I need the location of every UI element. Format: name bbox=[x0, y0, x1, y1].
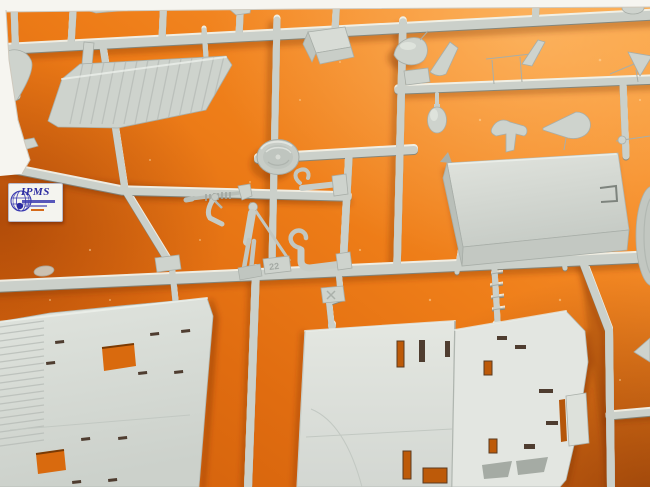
part-number-tag-4 bbox=[404, 68, 430, 85]
logo-subtitle-bar-2 bbox=[25, 205, 47, 207]
part-lower-wing-right bbox=[452, 311, 589, 487]
logo-title: IPMS bbox=[21, 186, 50, 198]
photo-canvas: 22 bbox=[0, 0, 650, 487]
part-lower-wing-left bbox=[0, 298, 213, 487]
photo-frame: 22 bbox=[0, 0, 650, 487]
logo-subtitle-bar bbox=[22, 200, 55, 203]
logo-accent-bar bbox=[31, 209, 44, 211]
part-cabin-roof-panel bbox=[440, 152, 629, 266]
part-pilot-seat bbox=[303, 27, 354, 64]
tag-number-text: 22 bbox=[269, 261, 280, 272]
watermark-logo: IPMS bbox=[8, 183, 63, 222]
part-wheel-disc bbox=[257, 140, 299, 175]
part-lower-wing-center bbox=[297, 321, 455, 487]
